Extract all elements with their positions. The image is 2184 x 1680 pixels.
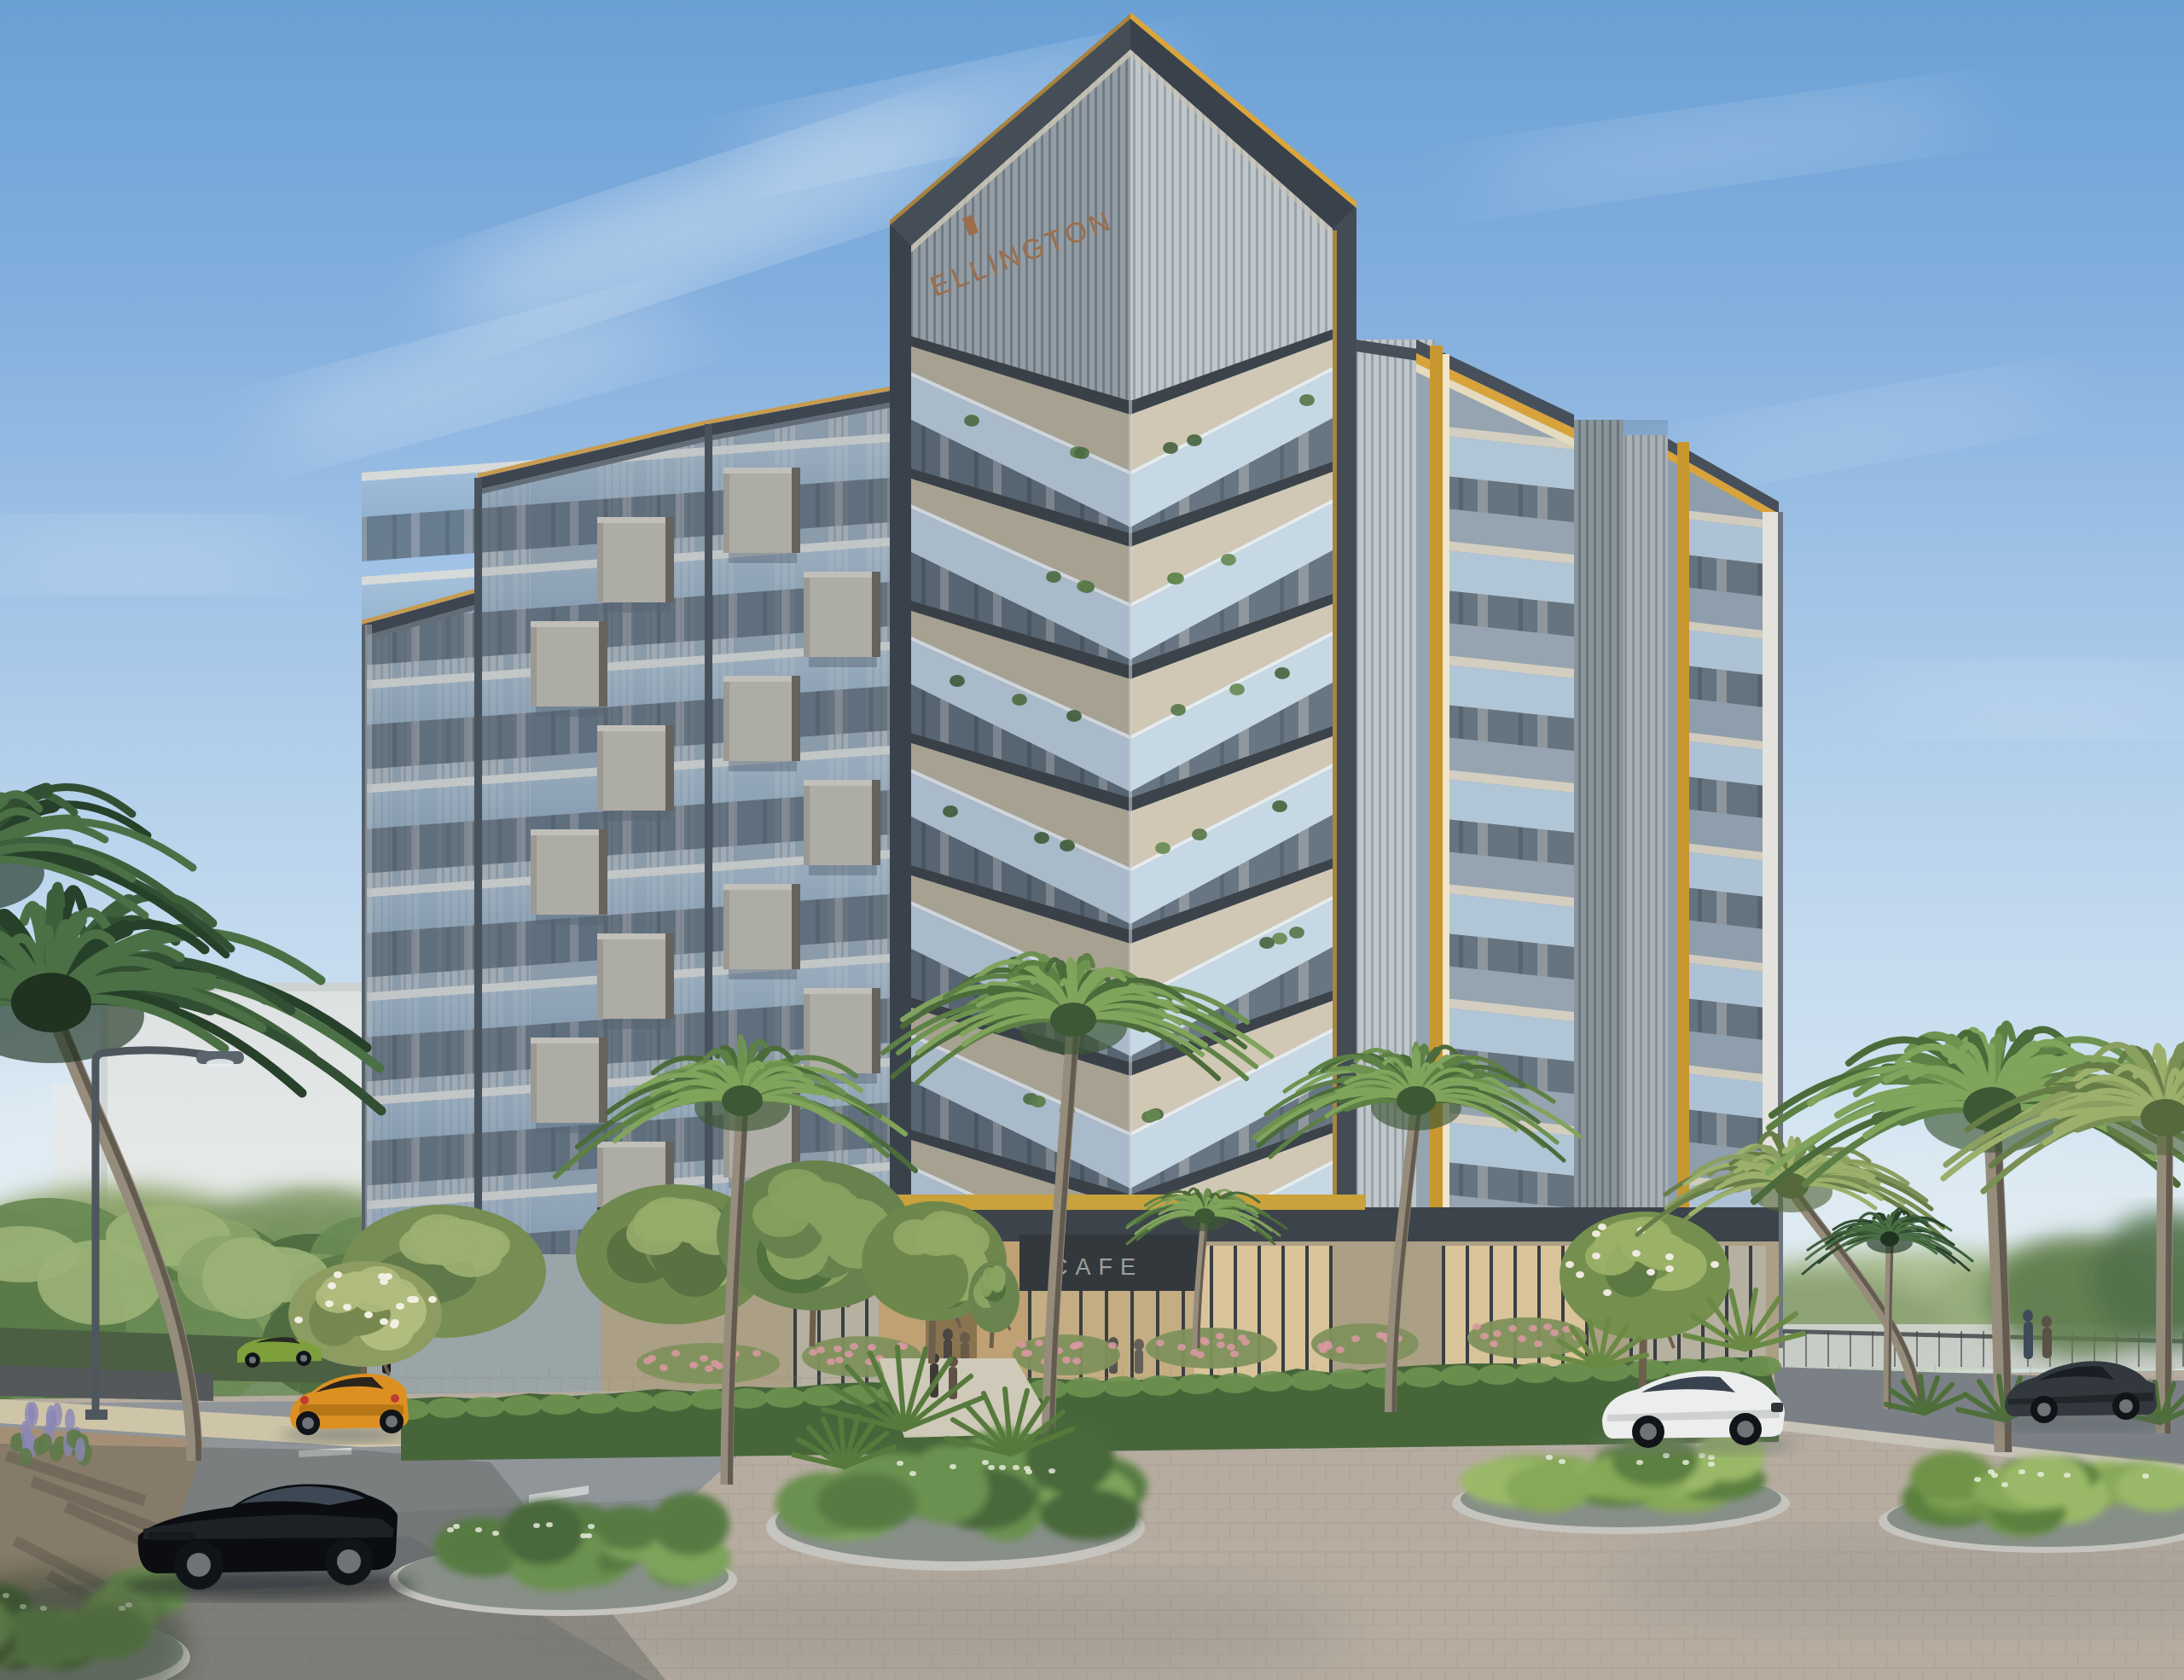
svg-text:CAFE: CAFE xyxy=(1051,1254,1143,1280)
